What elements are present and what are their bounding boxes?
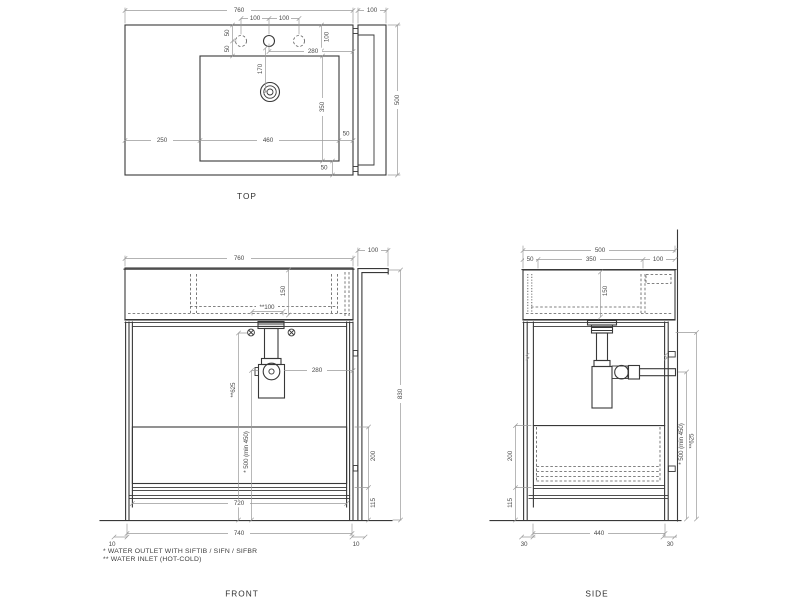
drain-icon [261,83,280,102]
front-view-title: FRONT [225,589,259,599]
dim-top-hole-offsets: 50 50 [224,23,236,58]
dim-label: 50 [224,29,231,36]
footnotes: * WATER OUTLET WITH SIFTIB / SIFN / SIFB… [103,548,257,563]
dim-label: 280 [312,367,323,374]
hidden-back-ledge [646,275,671,284]
dim-label: 30 [667,541,674,548]
dim-label: 250 [157,137,168,144]
hidden-drawer-lines [537,427,661,481]
dim-label: 200 [507,450,514,461]
dim-label: 280 [308,48,319,55]
dim-label: 760 [234,255,245,262]
dim-side-front-inset: 30 [520,535,535,548]
dim-label: 100 [324,31,331,42]
dim-label: 100 [367,7,378,14]
front-view: 760 100 150 **100 280 **625 * 500 (min 4… [100,247,404,599]
dim-label: 30 [521,541,528,548]
side-view-title: SIDE [585,589,608,599]
dim-top-hole-left: 100 [239,15,271,34]
dim-label: 100 [368,247,379,254]
dim-label: **100 [260,304,276,311]
dim-label: **625 [230,382,237,398]
side-towel-bar-top [353,25,386,175]
cabinet-side-panels [524,322,669,520]
dim-label: 740 [234,530,245,537]
dim-front-base-width: 740 [125,524,354,537]
side-towel-bar-front [353,269,388,521]
dim-label: * 500 (min 450) [243,431,250,473]
dim-side-base-depth: 440 [531,524,667,537]
dim-front-total-height: 830 [389,268,404,522]
counter-side-outline [523,270,675,320]
dim-label: 100 [250,15,261,22]
hidden-basin-lines [526,274,672,313]
optional-faucet-hole-left-icon [236,36,247,47]
dim-label: 115 [370,498,377,508]
dim-label: 10 [353,541,360,548]
dim-label: * 500 (min 450) [678,423,685,465]
dim-label: 350 [586,256,597,263]
dim-label: 440 [594,530,605,537]
dim-label: 170 [257,63,264,74]
dim-label: 150 [602,285,609,296]
dim-front-left-inset: 10 [109,535,129,548]
dim-label: 100 [279,15,290,22]
dim-top-hole-right: 100 [269,15,301,34]
dim-label: 115 [507,498,514,508]
footnote-water-inlet: ** WATER INLET (HOT-COLD) [103,556,202,563]
dim-label: 200 [370,450,377,461]
trap-side-icon [588,321,676,409]
dim-front-side-width: 100 [356,247,390,266]
dim-label: 50 [343,131,350,138]
dim-label: 500 [394,94,401,105]
counter-front-outline [125,268,353,320]
dim-top-basin-depth: 350 [319,54,327,163]
dim-label: 500 [595,247,606,254]
optional-faucet-hole-right-icon [294,36,305,47]
top-view: 760 100 500 100 100 50 50 [123,7,401,201]
dim-front-right-inset: 10 [350,535,367,548]
cabinet-rails [523,323,668,499]
dim-top-side-width: 100 [356,7,388,23]
dim-front-width: 760 [123,255,355,266]
top-view-title: TOP [237,191,257,201]
wall-bracket-upper [668,352,675,358]
drawer-front-outline [132,427,346,484]
dim-label: 460 [263,137,274,144]
dim-top-faucet-to-edge: 280 [267,44,355,55]
dim-label: 50 [527,256,534,263]
dim-side-sub-depths: 50 350 100 [521,256,677,268]
dim-front-base-height: 115 [367,488,378,523]
side-view: 500 50 350 100 150 200 115 440 [490,230,699,599]
wall-bracket-lower [668,466,675,472]
dim-label: 150 [280,285,287,296]
dim-label: 720 [234,500,245,507]
dim-label: 50 [321,165,328,172]
dim-label: **625 [688,433,695,449]
footnote-water-outlet: * WATER OUTLET WITH SIFTIB / SIFN / SIFB… [103,548,257,555]
dim-side-outlet-height: * 500 (min 450) [678,370,689,521]
cabinet-rails [125,323,353,499]
dim-label: 760 [234,7,245,14]
dim-side-back-inset: 30 [661,535,677,548]
dim-side-base-height: 115 [507,488,518,522]
dim-label: 50 [224,45,231,52]
dim-front-trap-to-side: 280 [285,367,356,375]
dim-front-inner-width: 720 [130,500,348,508]
dim-label: 830 [397,388,404,399]
technical-drawing-page: 760 100 500 100 100 50 50 [0,0,800,600]
vanity-technical-drawing: 760 100 500 100 100 50 50 [0,0,800,600]
dim-label: 350 [319,101,326,112]
dim-top-horizontal-row: 250 460 50 [123,131,355,145]
dim-label: 100 [653,256,664,263]
trap-front-icon [248,322,295,399]
dim-side-basin-height: 150 [599,270,610,319]
dim-label: 10 [109,541,116,548]
hidden-basin-lines [128,272,350,318]
dim-top-depth: 500 [388,23,401,177]
dim-top-bottom-margin: 50 [321,159,335,177]
